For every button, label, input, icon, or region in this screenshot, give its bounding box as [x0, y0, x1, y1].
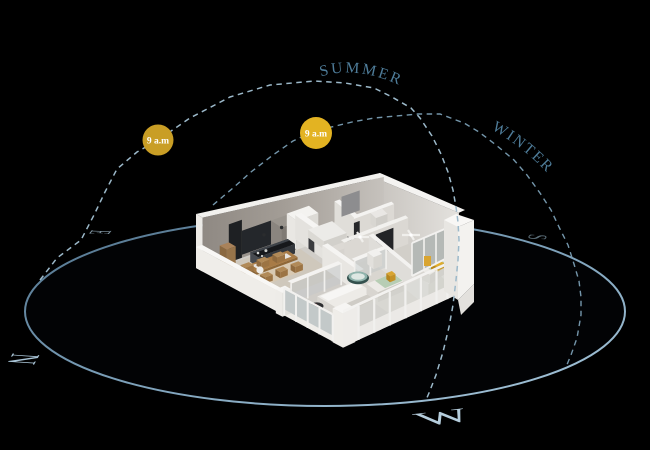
svg-text:9 a.m: 9 a.m — [147, 137, 169, 147]
svg-text:9 a.m: 9 a.m — [305, 130, 327, 140]
